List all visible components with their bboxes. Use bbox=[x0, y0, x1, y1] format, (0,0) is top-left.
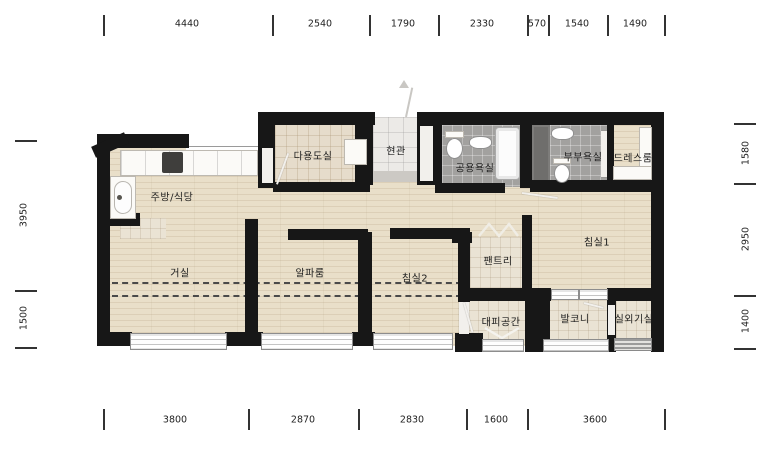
entrance-shoe-closet bbox=[420, 126, 433, 181]
ruler-tick bbox=[15, 140, 37, 142]
evacuation-window bbox=[482, 339, 524, 352]
wall bbox=[530, 180, 664, 192]
dim-top-1540: 1540 bbox=[565, 19, 589, 30]
wall bbox=[225, 332, 263, 346]
utility-room-door bbox=[262, 148, 273, 183]
wall bbox=[97, 146, 110, 346]
floor-plan: 주방/식당 거실 알파룸 침실2 팬트리 침실1 다용도실 현관 공용욕실 부부… bbox=[0, 0, 773, 454]
common-bath-sink bbox=[469, 136, 492, 149]
dim-left-3950: 3950 bbox=[19, 203, 30, 227]
ruler-tick bbox=[548, 15, 550, 36]
balcony-window bbox=[543, 339, 609, 352]
dim-right-1400: 1400 bbox=[741, 309, 752, 333]
entrance-step bbox=[373, 171, 417, 182]
label-outdoor-unit-room: 실외기실 bbox=[615, 311, 654, 326]
pantry-folding-door-icon bbox=[476, 221, 520, 238]
ruler-tick bbox=[438, 15, 440, 36]
entrance-door-arrowhead bbox=[399, 80, 409, 88]
wall bbox=[417, 112, 664, 125]
ruler-tick bbox=[103, 409, 105, 430]
wall bbox=[97, 332, 132, 346]
dim-bottom-3800: 3800 bbox=[163, 415, 187, 426]
ruler-tick bbox=[15, 347, 37, 349]
master-bath-toilet bbox=[554, 164, 570, 183]
ruler-tick bbox=[369, 15, 371, 36]
label-bedroom1: 침실1 bbox=[584, 234, 610, 249]
dim-bottom-2830: 2830 bbox=[400, 415, 424, 426]
wall bbox=[520, 113, 532, 188]
label-master-bathroom: 부부욕실 bbox=[564, 149, 603, 164]
label-common-bathroom: 공용욕실 bbox=[456, 160, 495, 175]
ruler-tick bbox=[103, 15, 105, 36]
dim-top-4440: 4440 bbox=[175, 19, 199, 30]
sink-drain bbox=[117, 195, 122, 200]
wall bbox=[651, 113, 664, 193]
label-pantry: 팬트리 bbox=[483, 253, 512, 268]
dim-bottom-2870: 2870 bbox=[291, 415, 315, 426]
ruler-tick bbox=[734, 123, 756, 125]
wall bbox=[455, 333, 483, 352]
washer bbox=[344, 139, 367, 165]
wall bbox=[245, 219, 258, 333]
extension-dashed-line-lower bbox=[112, 295, 462, 297]
ruler-tick bbox=[248, 409, 250, 430]
ruler-tick bbox=[527, 409, 529, 430]
ruler-tick bbox=[15, 290, 37, 292]
dim-top-570: 570 bbox=[528, 19, 546, 30]
dress-room-wardrobe-bottom bbox=[613, 166, 652, 180]
dim-bottom-3600: 3600 bbox=[583, 415, 607, 426]
wall bbox=[352, 332, 375, 346]
ruler-tick bbox=[734, 348, 756, 350]
wall bbox=[288, 229, 368, 240]
dim-right-1580: 1580 bbox=[741, 141, 752, 165]
wall bbox=[435, 183, 505, 193]
ruler-tick bbox=[272, 15, 274, 36]
label-balcony: 발코니 bbox=[560, 311, 589, 326]
dim-bottom-1600: 1600 bbox=[484, 415, 508, 426]
label-evacuation-space: 대피공간 bbox=[482, 314, 521, 329]
master-bath-sink bbox=[551, 127, 574, 140]
label-bedroom2: 침실2 bbox=[402, 270, 428, 285]
entrance-door-arrow bbox=[405, 87, 413, 117]
wall bbox=[651, 192, 664, 302]
label-utility-room: 다용도실 bbox=[294, 148, 333, 163]
label-alpha-room: 알파룸 bbox=[295, 265, 324, 280]
bedroom1-balcony-window-divider bbox=[578, 290, 580, 299]
dim-top-2330: 2330 bbox=[470, 19, 494, 30]
common-bath-toilet-tank bbox=[445, 131, 464, 138]
dim-top-2540: 2540 bbox=[308, 19, 332, 30]
wall bbox=[435, 125, 442, 185]
label-dress-room: 드레스룸 bbox=[614, 150, 653, 165]
alpha-room-window bbox=[261, 333, 353, 350]
label-kitchen-dining: 주방/식당 bbox=[151, 189, 194, 204]
ruler-tick bbox=[358, 409, 360, 430]
dim-top-1790: 1790 bbox=[391, 19, 415, 30]
kitchen-counter-top bbox=[120, 150, 258, 176]
bedroom2-window bbox=[373, 333, 453, 350]
living-room-window bbox=[130, 333, 227, 350]
wall bbox=[358, 232, 372, 333]
ruler-tick bbox=[664, 409, 666, 430]
ruler-tick bbox=[664, 15, 666, 36]
outdoor-unit-louver bbox=[614, 338, 652, 351]
ruler-tick bbox=[734, 295, 756, 297]
ruler-tick bbox=[607, 15, 609, 36]
ruler-tick bbox=[466, 409, 468, 430]
ruler-tick bbox=[734, 183, 756, 185]
dim-left-1500: 1500 bbox=[19, 306, 30, 330]
label-entrance: 현관 bbox=[386, 143, 405, 158]
dim-right-2950: 2950 bbox=[741, 227, 752, 251]
label-living-room: 거실 bbox=[170, 265, 189, 280]
cooktop bbox=[162, 152, 183, 173]
common-bath-tub bbox=[495, 127, 520, 180]
duct-shaft bbox=[532, 125, 550, 183]
common-bath-toilet bbox=[446, 138, 463, 159]
dim-top-1490: 1490 bbox=[623, 19, 647, 30]
